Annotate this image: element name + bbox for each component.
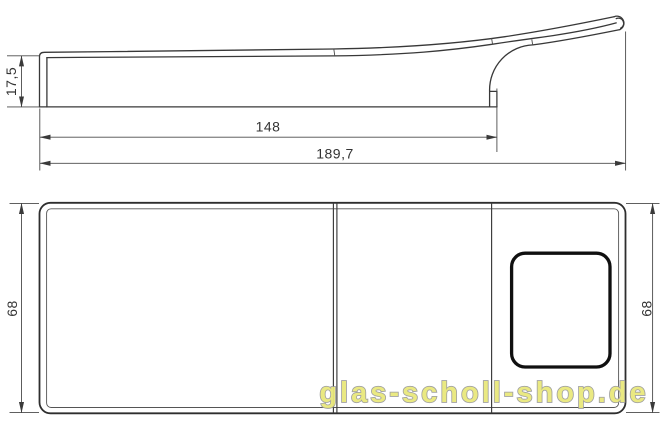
watermark: glas-scholl-shop.de [319,377,648,409]
technical-drawing-canvas: 17,5 148 189,7 68 [0,0,665,427]
dimension-label-189-7: 189,7 [316,145,354,161]
dimension-total-length: 189,7 [40,32,626,171]
handle-underside-line [47,23,616,58]
dimension-label-148: 148 [256,119,281,135]
suction-pad-cutout [512,253,610,367]
side-view: 17,5 148 189,7 [3,16,626,170]
dimension-height: 17,5 [3,56,40,107]
dimension-label-68-left: 68 [4,300,20,317]
segment-tick-3 [532,40,533,46]
drawing-svg: 17,5 148 189,7 68 [0,0,665,427]
segment-tick-2 [492,38,493,44]
plate-end-cap [490,91,497,107]
dimension-plate-length: 148 [40,89,497,171]
bend-fillet-arc [490,45,533,91]
dimension-label-68-right: 68 [639,300,655,317]
segment-tick-1 [334,49,335,56]
dimension-label-17-5: 17,5 [3,67,19,96]
side-view-outline-top [40,17,615,107]
handle-tip-cap-inner [616,18,623,28]
dimension-width-left: 68 [4,203,39,412]
